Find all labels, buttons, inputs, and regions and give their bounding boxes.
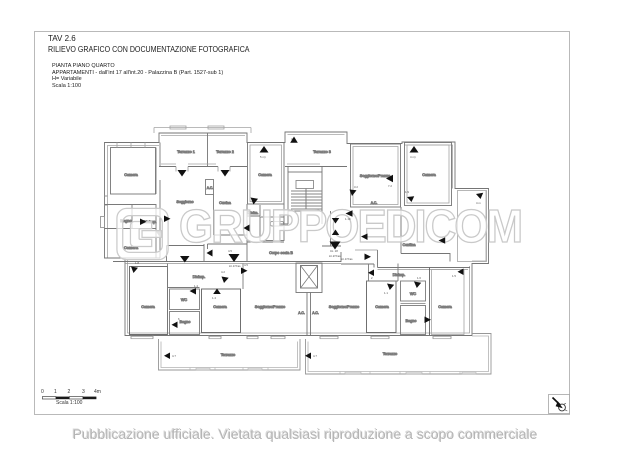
svg-text:1.4: 1.4 <box>194 284 198 288</box>
svg-text:6: 6 <box>178 317 180 321</box>
svg-text:1.6: 1.6 <box>417 276 421 280</box>
svg-text:3.2: 3.2 <box>354 185 358 189</box>
svg-text:Int. 18: Int. 18 <box>330 249 338 253</box>
svg-text:1.5: 1.5 <box>452 274 456 278</box>
svg-text:4.5: 4.5 <box>228 249 232 253</box>
svg-text:1.8: 1.8 <box>135 261 139 265</box>
svg-text:1.10: 1.10 <box>345 217 351 221</box>
svg-text:1.1: 1.1 <box>384 291 388 295</box>
svg-text:int.2/Tras: int.2/Tras <box>329 254 341 258</box>
svg-text:4.2: 4.2 <box>221 270 225 274</box>
svg-text:4 m): 4 m) <box>410 155 416 159</box>
svg-text:4 m: 4 m <box>476 201 481 205</box>
svg-text:2: 2 <box>371 276 373 280</box>
svg-text:int.1/Tras: int.1/Tras <box>229 264 241 268</box>
svg-text:1.9: 1.9 <box>405 190 409 194</box>
svg-text:int.1/Tras: int.1/Tras <box>341 257 353 261</box>
svg-text:7.2: 7.2 <box>388 184 392 188</box>
svg-text:1.4: 1.4 <box>212 296 216 300</box>
svg-text:4.5: 4.5 <box>244 263 248 267</box>
svg-text:4.7: 4.7 <box>313 354 317 358</box>
svg-text:5 m): 5 m) <box>260 155 266 159</box>
svg-text:4.7: 4.7 <box>172 354 176 358</box>
